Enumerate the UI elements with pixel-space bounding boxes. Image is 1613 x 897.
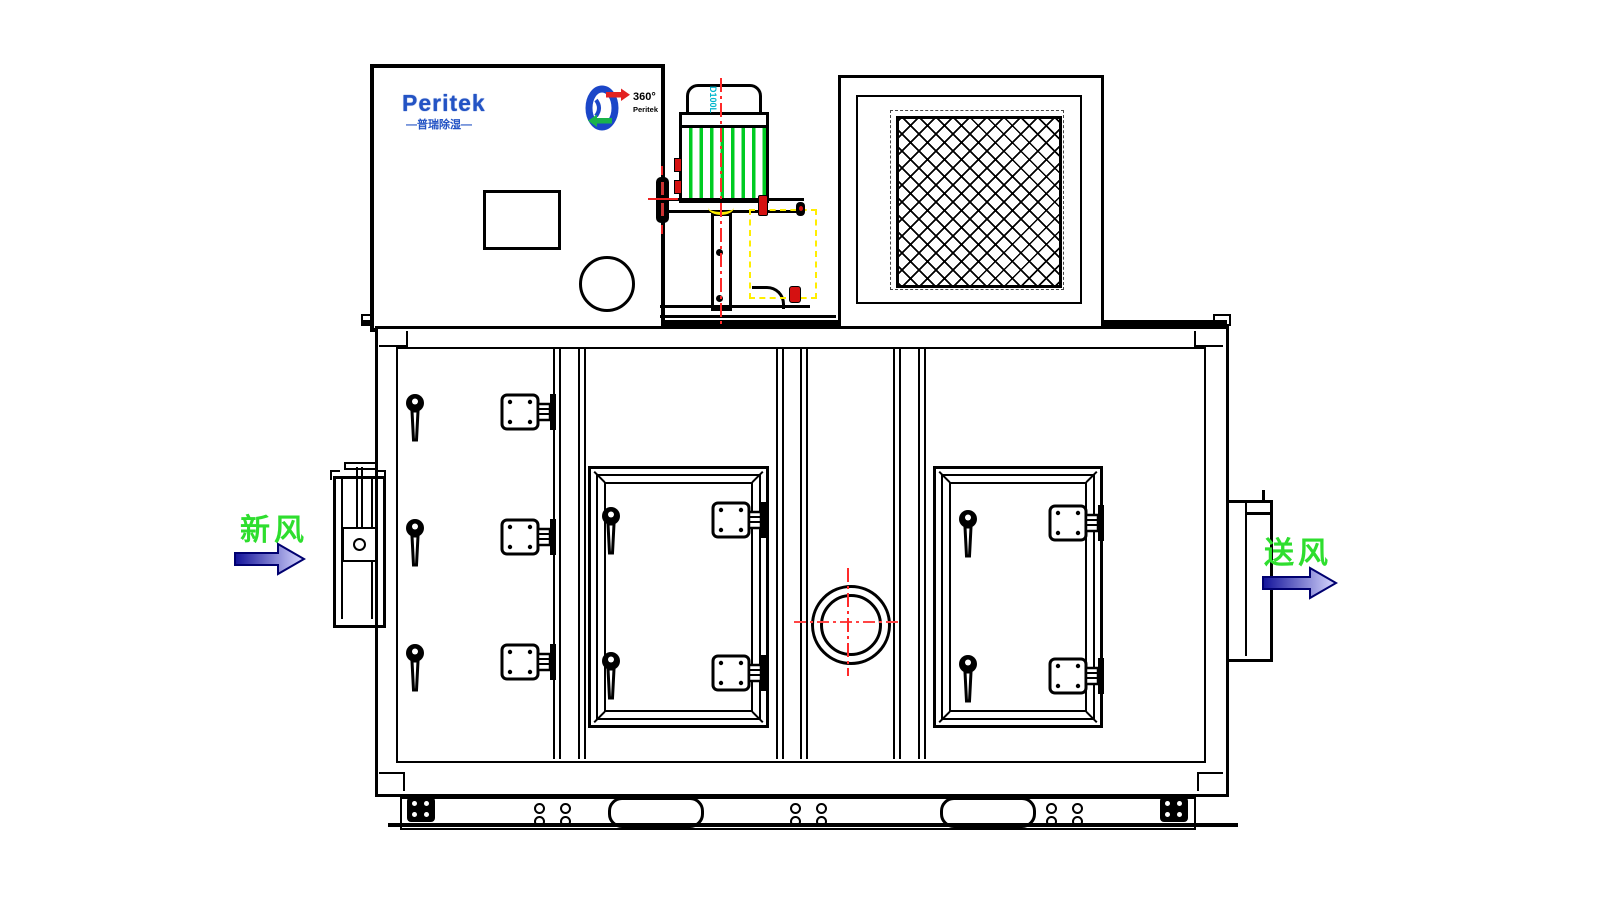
notch-top-right <box>1194 331 1223 347</box>
damper-rod2 <box>361 467 363 529</box>
panel-window <box>483 190 561 250</box>
door-hinge <box>711 500 769 540</box>
mount-flange-line <box>666 198 804 201</box>
bracket-bolt <box>424 812 429 817</box>
door-hinge <box>500 517 558 557</box>
base-bolt-hole <box>560 816 571 827</box>
base-bolt-hole <box>816 803 827 814</box>
bracket-bolt <box>1177 801 1182 806</box>
divider-a-line3 <box>578 347 580 759</box>
notch-bottom-right <box>1197 772 1223 791</box>
motor-model-label: D100L <box>708 86 718 113</box>
base-bottom-line <box>388 823 1238 827</box>
duct-stub-inner-line <box>1245 500 1247 656</box>
base-bolt-hole <box>1046 816 1057 827</box>
damper-hook-right <box>376 470 386 480</box>
supply-air-arrow-icon <box>1262 564 1338 602</box>
turnbuckle-red-dash-top <box>661 182 664 195</box>
bracket-bolt <box>412 801 417 806</box>
service-zone-dashed <box>749 209 817 299</box>
fresh-air-arrow-icon <box>234 540 306 578</box>
bracket-bolt <box>1165 812 1170 817</box>
notch-bottom-left <box>379 772 405 791</box>
divider-b-line4 <box>806 347 808 759</box>
duct-flange-tab <box>1262 490 1265 502</box>
door-hinge <box>1048 656 1106 696</box>
rotor-badge-logo: 360° Peritek <box>583 84 661 132</box>
porthole-crosshair-v <box>847 568 849 676</box>
brand-logo-subtitle: —普瑞除湿— <box>406 116 472 132</box>
base-bolt-hole <box>1072 803 1083 814</box>
bracket-bolt <box>412 812 417 817</box>
grille-box <box>838 75 1104 330</box>
divider-c-line1 <box>893 347 895 759</box>
divider-a-line4 <box>584 347 586 759</box>
red-bolt-3 <box>789 286 801 303</box>
notch-top-left <box>379 331 408 347</box>
red-pin-1 <box>674 158 682 172</box>
latch-handle <box>955 653 981 705</box>
damper-rod-tbar <box>344 462 378 470</box>
latch-handle <box>955 508 981 560</box>
divider-c-line3 <box>918 347 920 759</box>
turnbuckle-red-dash-bot <box>661 203 664 216</box>
latch-handle <box>402 517 428 569</box>
bracket-bolt <box>1177 812 1182 817</box>
base-bolt-hole <box>1046 803 1057 814</box>
base-bolt-hole <box>816 816 827 827</box>
rotor-red-arrow-icon <box>621 89 630 102</box>
red-bolt-2-dot <box>799 206 803 211</box>
door-hinge <box>1048 503 1106 543</box>
latch-handle <box>402 392 428 444</box>
motor-finned-body <box>679 125 769 203</box>
porthole-inner <box>820 594 882 656</box>
divider-b-line1 <box>776 347 778 759</box>
brand-logo-text: Peritek <box>402 90 486 117</box>
latch-handle <box>598 650 624 702</box>
pedestal-base-line2 <box>660 315 836 318</box>
divider-b-line2 <box>782 347 784 759</box>
motor-centerline <box>720 78 722 330</box>
base-bolt-hole <box>534 803 545 814</box>
door-hinge <box>500 642 558 682</box>
base-bolt-hole <box>534 816 545 827</box>
base-bolt-hole <box>790 816 801 827</box>
red-pin-2 <box>674 180 682 194</box>
base-bracket-right <box>1160 797 1188 822</box>
divider-c-line4 <box>924 347 926 759</box>
door-hinge <box>711 653 769 693</box>
damper-actuator-shaft-dot <box>353 538 366 551</box>
base-bolt-hole <box>1072 816 1083 827</box>
door-hinge <box>500 392 558 432</box>
bracket-bolt <box>1165 801 1170 806</box>
forklift-slot-1 <box>608 797 704 828</box>
panel-round-hole <box>579 256 635 312</box>
pedestal-base-line <box>660 305 810 308</box>
badge-degrees-text: 360° <box>633 91 656 103</box>
turnbuckle-red-axis <box>648 198 678 200</box>
divider-a-line2 <box>559 347 561 759</box>
latch-handle <box>598 505 624 557</box>
red-bolt-1 <box>758 195 768 216</box>
roof-tab-right <box>1213 314 1231 326</box>
divider-c-line2 <box>899 347 901 759</box>
bracket-bolt <box>424 801 429 806</box>
latch-handle <box>402 642 428 694</box>
base-bolt-hole <box>560 803 571 814</box>
turnbuckle-red-tick-top <box>661 166 663 175</box>
rotor-inner-curve <box>596 100 599 116</box>
divider-b-line3 <box>800 347 802 759</box>
cad-drawing-dehumidifier-front-view: Peritek —普瑞除湿— 360° Peritek D100L <box>0 0 1613 897</box>
damper-rod <box>356 467 358 529</box>
badge-brand-text: Peritek <box>633 105 659 114</box>
duct-flange-top <box>1245 512 1273 515</box>
base-bracket-left <box>407 797 435 822</box>
mesh-screen <box>896 116 1062 288</box>
turnbuckle-red-tick-bot <box>661 225 663 234</box>
base-bolt-hole <box>790 803 801 814</box>
forklift-slot-2 <box>940 797 1036 828</box>
damper-hook-left <box>330 470 340 480</box>
